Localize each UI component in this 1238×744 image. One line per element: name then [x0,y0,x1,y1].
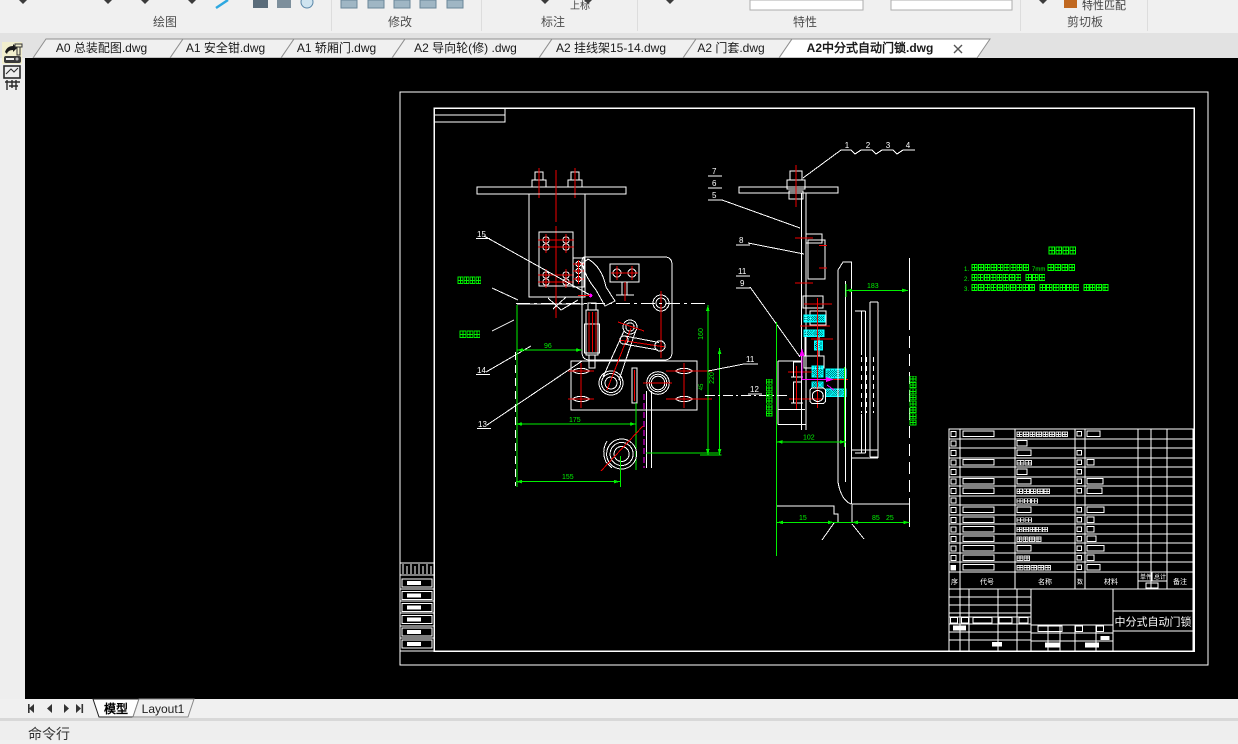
svg-text:代号: 代号 [980,577,994,586]
svg-text:总计: 总计 [1154,573,1166,581]
svg-text:11: 11 [738,267,747,276]
svg-text:7: 7 [712,167,717,176]
svg-text:7mm: 7mm [1032,267,1045,273]
svg-text:13: 13 [478,420,487,429]
svg-text:4: 4 [906,141,911,150]
svg-text:2.: 2. [964,277,969,283]
svg-text:数: 数 [1077,578,1083,586]
svg-text:5: 5 [712,191,717,200]
svg-text:12: 12 [750,385,759,394]
svg-text:102: 102 [803,435,815,442]
svg-text:9: 9 [740,279,745,288]
svg-text:序: 序 [951,577,958,586]
svg-text:1: 1 [845,141,850,150]
svg-text:85: 85 [872,515,880,522]
svg-text:备注: 备注 [1173,577,1187,586]
svg-text:155: 155 [562,474,574,481]
svg-text:11: 11 [746,355,755,364]
svg-text:14: 14 [477,366,486,375]
svg-text:15: 15 [477,230,486,239]
svg-text:6: 6 [712,179,717,188]
svg-text:45: 45 [699,383,705,390]
svg-text:175: 175 [569,417,581,424]
svg-text:单件: 单件 [1140,573,1152,581]
svg-text:材料: 材料 [1104,577,1118,586]
svg-text:Layout1: Layout1 [142,702,185,716]
svg-text:96: 96 [544,343,552,350]
svg-text:模型: 模型 [104,701,128,716]
svg-text:15: 15 [799,515,807,522]
svg-text:25: 25 [886,515,894,522]
svg-text:220: 220 [709,372,716,384]
svg-text:3: 3 [886,141,891,150]
svg-text:8: 8 [739,236,744,245]
svg-text:183: 183 [867,283,879,290]
svg-text:中分式自动门锁: 中分式自动门锁 [1115,615,1192,629]
svg-text:3.: 3. [964,287,969,293]
svg-text:名称: 名称 [1038,577,1052,586]
svg-text:160: 160 [698,328,705,340]
svg-text:2: 2 [866,141,871,150]
svg-text:1.: 1. [964,267,969,273]
